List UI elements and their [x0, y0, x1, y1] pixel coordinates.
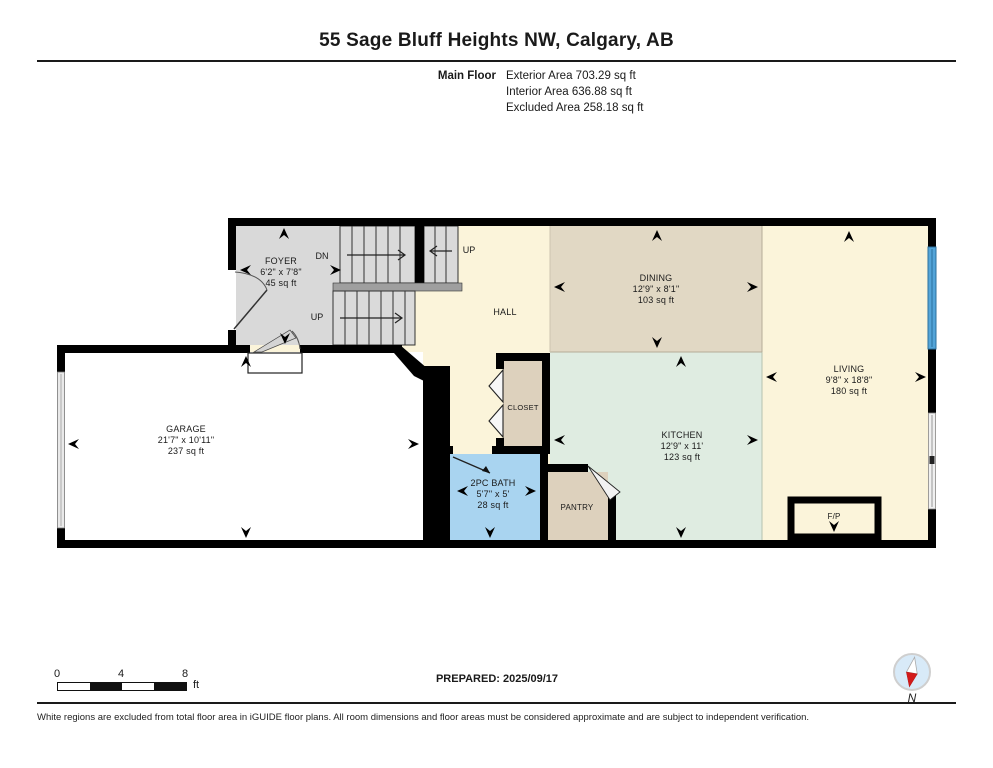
room-label-fireplace: F/P: [827, 511, 840, 522]
scale-bar: [57, 682, 187, 691]
footer-divider: [37, 702, 956, 704]
disclaimer-text: White regions are excluded from total fl…: [37, 712, 956, 723]
prepared-date: PREPARED: 2025/09/17: [397, 673, 597, 685]
scale-tick-8: 8: [182, 668, 188, 680]
room-label-closet: CLOSET: [507, 402, 538, 413]
garage-step: [248, 353, 302, 373]
room-label-hall: HALL: [493, 307, 516, 318]
stairs-up-label: UP: [311, 312, 324, 322]
room-label-bath: 2PC BATH 5'7" x 5' 28 sq ft: [471, 478, 516, 511]
room-label-dining: DINING 12'9" x 8'1" 103 sq ft: [633, 273, 680, 306]
stairs-up2-label: UP: [463, 245, 476, 255]
room-label-pantry: PANTRY: [561, 502, 594, 513]
scale-tick-4: 4: [118, 668, 124, 680]
scale-unit: ft: [193, 679, 199, 691]
room-label-kitchen: KITCHEN 12'9" x 11' 123 sq ft: [661, 430, 704, 463]
stairs-dn-label: DN: [316, 251, 329, 261]
floorplan-page: 55 Sage Bluff Heights NW, Calgary, AB Ma…: [0, 0, 993, 768]
compass-icon: [894, 654, 930, 690]
room-label-foyer: FOYER 6'2" x 7'8" 45 sq ft: [260, 256, 302, 289]
scale-tick-0: 0: [54, 668, 60, 680]
room-label-living: LIVING 9'8" x 18'8" 180 sq ft: [826, 364, 873, 397]
room-label-garage: GARAGE 21'7" x 10'11" 237 sq ft: [158, 424, 215, 457]
